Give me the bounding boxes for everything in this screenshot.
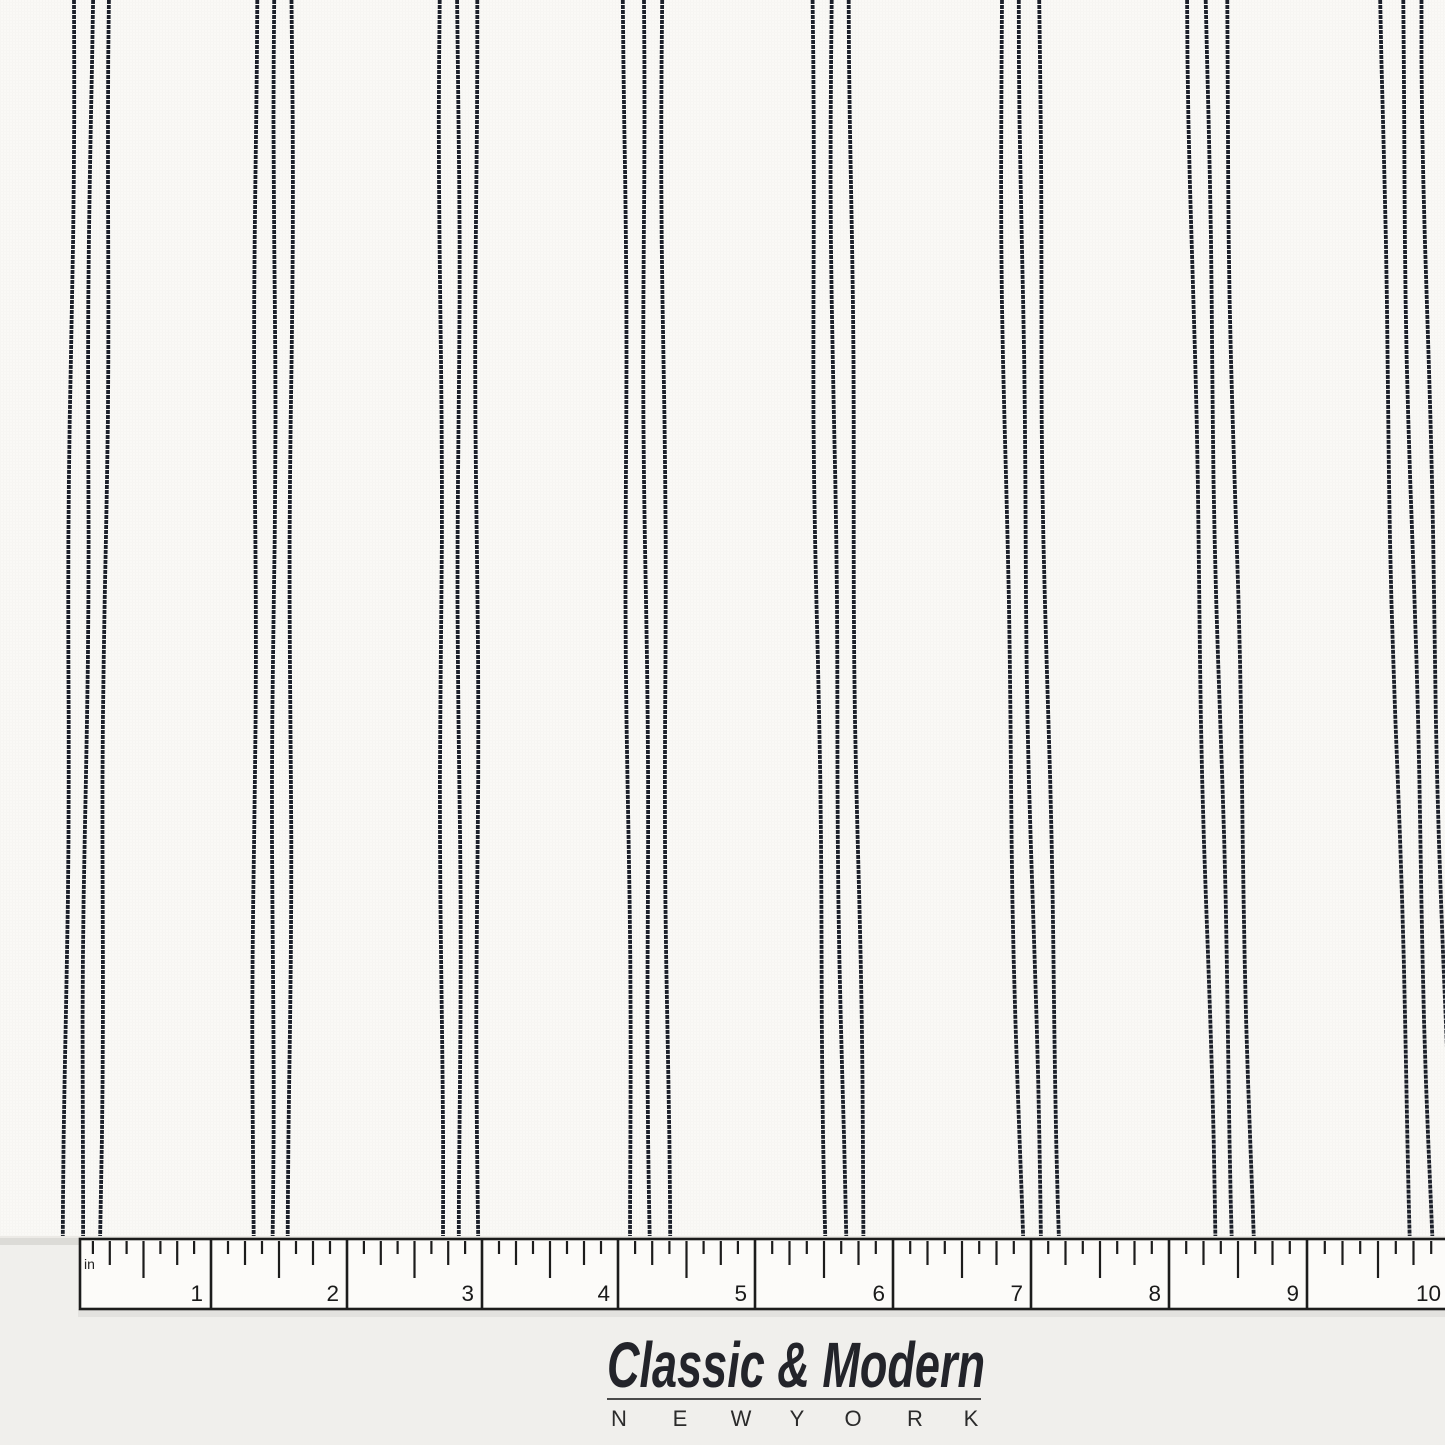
- svg-text:W: W: [731, 1406, 752, 1431]
- svg-text:N: N: [611, 1406, 627, 1431]
- svg-text:3: 3: [461, 1281, 474, 1306]
- svg-text:in: in: [84, 1256, 95, 1272]
- svg-text:8: 8: [1148, 1281, 1161, 1306]
- svg-text:1: 1: [190, 1281, 203, 1306]
- svg-text:O: O: [844, 1406, 861, 1431]
- svg-text:Y: Y: [790, 1406, 805, 1431]
- svg-text:K: K: [964, 1406, 979, 1431]
- svg-text:R: R: [907, 1406, 923, 1431]
- svg-text:9: 9: [1286, 1281, 1299, 1306]
- svg-text:4: 4: [597, 1281, 610, 1306]
- svg-text:Classic & Modern: Classic & Modern: [607, 1329, 985, 1401]
- svg-text:5: 5: [734, 1281, 747, 1306]
- svg-text:7: 7: [1010, 1281, 1023, 1306]
- svg-text:2: 2: [326, 1281, 339, 1306]
- svg-text:6: 6: [872, 1281, 885, 1306]
- svg-text:10: 10: [1416, 1281, 1441, 1306]
- svg-text:E: E: [673, 1406, 688, 1431]
